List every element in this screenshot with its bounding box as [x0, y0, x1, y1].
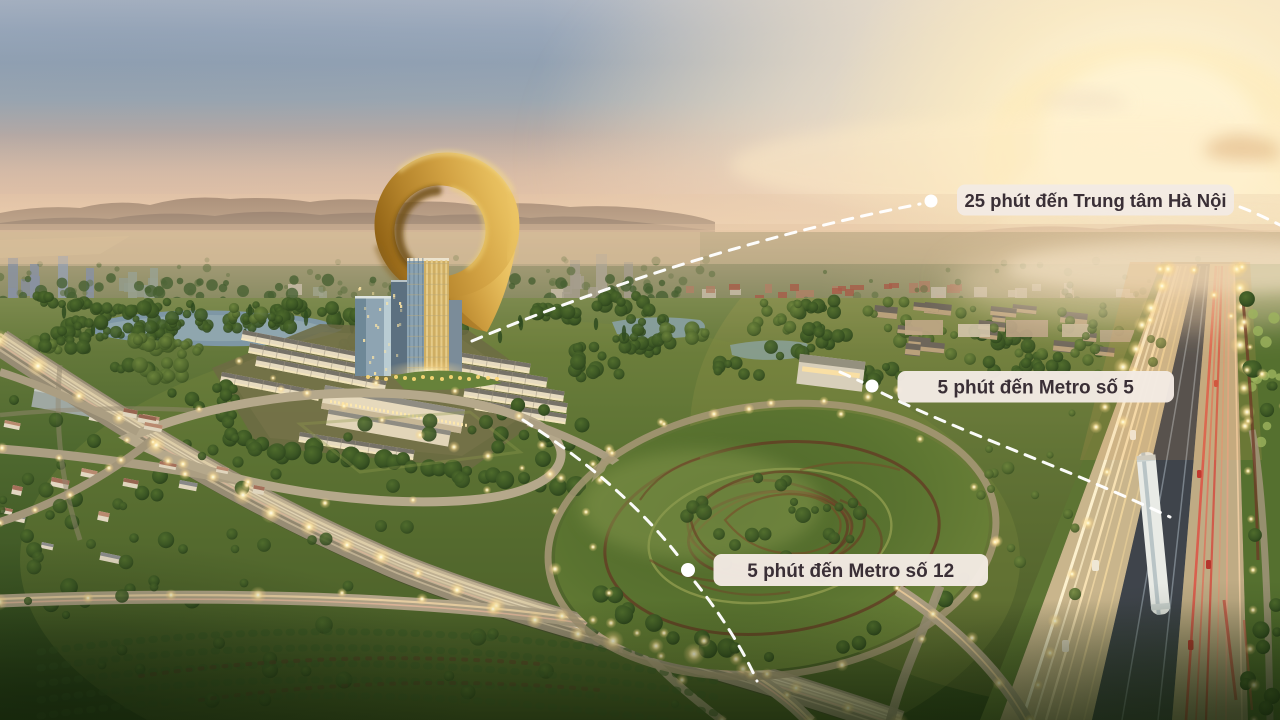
- svg-text:5 phút đến Metro số 5: 5 phút đến Metro số 5: [938, 378, 1135, 399]
- svg-text:25 phút đến Trung tâm Hà Nội: 25 phút đến Trung tâm Hà Nội: [964, 190, 1226, 211]
- svg-text:5 phút đến Metro số 12: 5 phút đến Metro số 12: [747, 561, 954, 582]
